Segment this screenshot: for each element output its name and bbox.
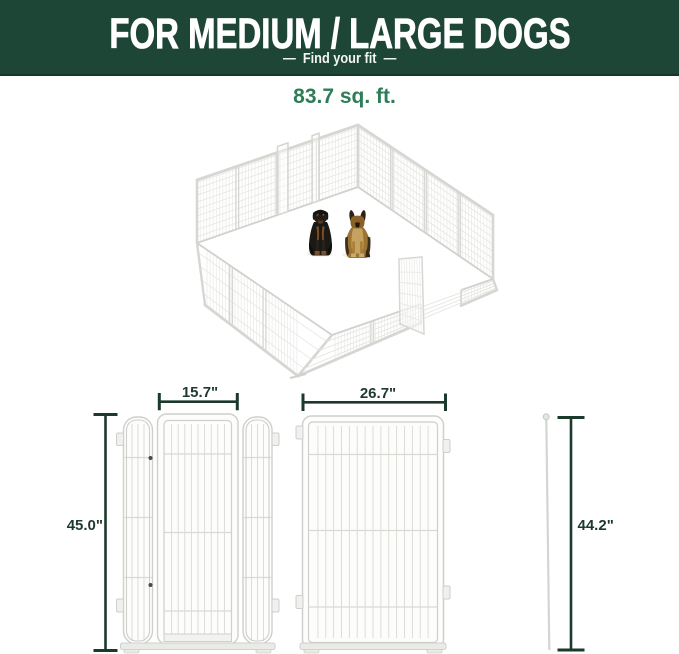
svg-text:26.7": 26.7" (360, 385, 396, 402)
svg-text:45.0": 45.0" (67, 517, 103, 534)
svg-text:44.2": 44.2" (578, 517, 614, 534)
svg-text:15.7": 15.7" (182, 384, 218, 401)
